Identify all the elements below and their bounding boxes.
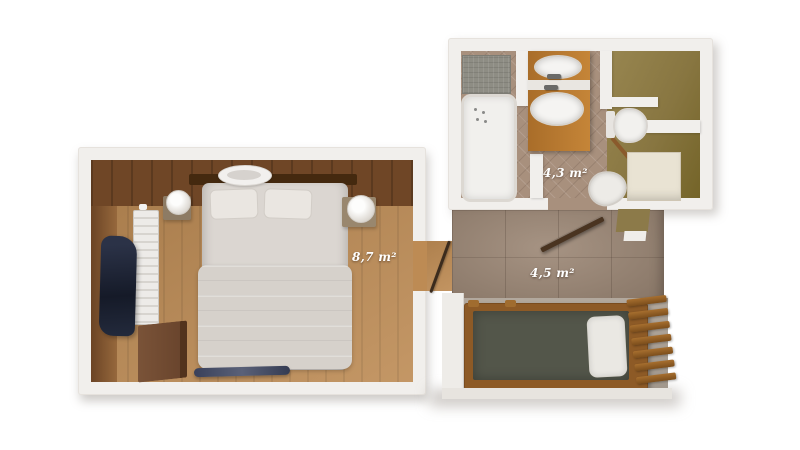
alcove-bottom-wall: [442, 388, 672, 399]
ladder-rung: [634, 359, 675, 371]
desk: [138, 320, 187, 382]
wc-threshold: [616, 209, 650, 232]
bed-pillow-right: [263, 188, 312, 220]
wc-divider-wall: [600, 51, 612, 109]
vanity-wall-stub: [530, 154, 543, 198]
bunk-pillow: [586, 315, 627, 378]
alcove-left-wall: [442, 293, 464, 393]
washbasin-faucet-bottom: [544, 85, 558, 90]
shower-divider-wall: [516, 51, 528, 106]
bathtub-faucet: [474, 108, 477, 111]
bed-blanket: [198, 265, 352, 369]
ladder-rung: [631, 334, 672, 346]
washbasin-bottom: [530, 92, 584, 126]
wc-partition-wall: [646, 120, 700, 133]
ceiling-light: [218, 165, 272, 186]
ladder-rung: [633, 347, 674, 359]
radiator-valve: [139, 204, 147, 210]
table-lamp-left: [166, 190, 191, 215]
hallway-area-label: 4,5 m²: [530, 266, 575, 280]
navy-curtain: [99, 236, 138, 337]
washbasin-faucet-top: [547, 74, 561, 79]
toilet: [613, 108, 648, 143]
table-lamp-right: [347, 195, 375, 223]
bedroom-door-opening: [413, 241, 427, 291]
vanity-split-wall: [528, 80, 590, 90]
bed-frame-bracket: [468, 300, 479, 307]
wc-north-wall-stub: [612, 97, 658, 107]
ladder-rung: [636, 372, 677, 384]
bedroom-area-label: 8,7 m²: [352, 250, 397, 264]
bed-pillow-left: [209, 188, 258, 220]
radiator: [133, 210, 159, 325]
wc-threshold-wall: [623, 231, 646, 241]
bathtub: [461, 94, 517, 202]
ladder-rung: [628, 308, 669, 320]
shower-mat: [462, 55, 511, 94]
ladder-rung: [630, 321, 671, 333]
ceiling-light-shade: [227, 170, 261, 180]
bathroom-cabinet: [627, 152, 681, 201]
floor-plan-render: 8,7 m² 4,3 m² 4,5 m²: [0, 0, 800, 450]
bed-frame-bracket: [505, 300, 516, 307]
bathroom-area-label: 4,3 m²: [543, 166, 588, 180]
